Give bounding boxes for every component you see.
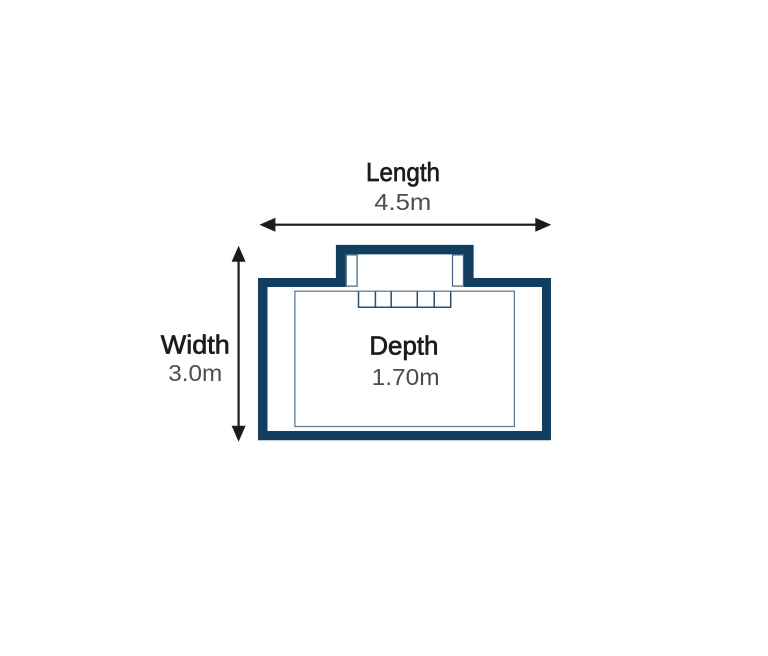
svg-text:4.5m: 4.5m xyxy=(374,189,431,215)
svg-text:Depth: Depth xyxy=(369,331,438,361)
svg-text:1.70m: 1.70m xyxy=(372,364,440,390)
svg-text:Width: Width xyxy=(161,330,230,360)
svg-text:Length: Length xyxy=(366,157,440,187)
svg-text:3.0m: 3.0m xyxy=(168,360,222,386)
